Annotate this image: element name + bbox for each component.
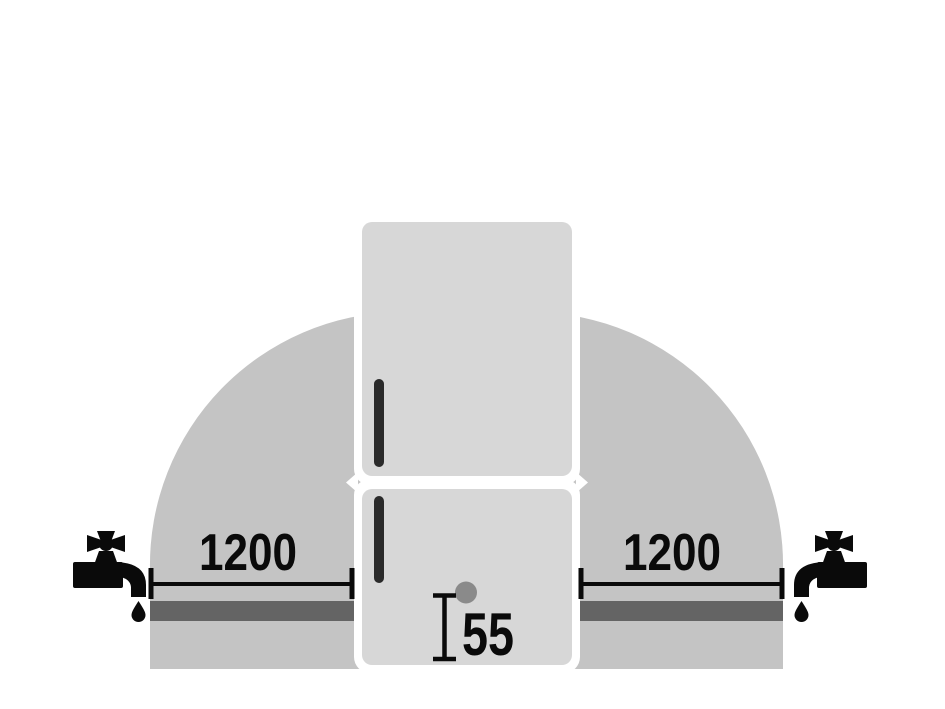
left-clearance-label: 1200 [199,524,297,582]
bottom-offset-dimension: 55 [433,595,514,668]
faucet-icon [73,531,146,622]
lower-door-handle [374,496,384,583]
diagram-canvas: 1200 1200 55 [0,0,945,709]
upper-door-handle [374,379,384,467]
bottom-offset-label: 55 [462,601,514,668]
faucet-icon [794,531,867,622]
fridge-upper-door [362,222,572,476]
right-clearance-label: 1200 [623,524,721,582]
